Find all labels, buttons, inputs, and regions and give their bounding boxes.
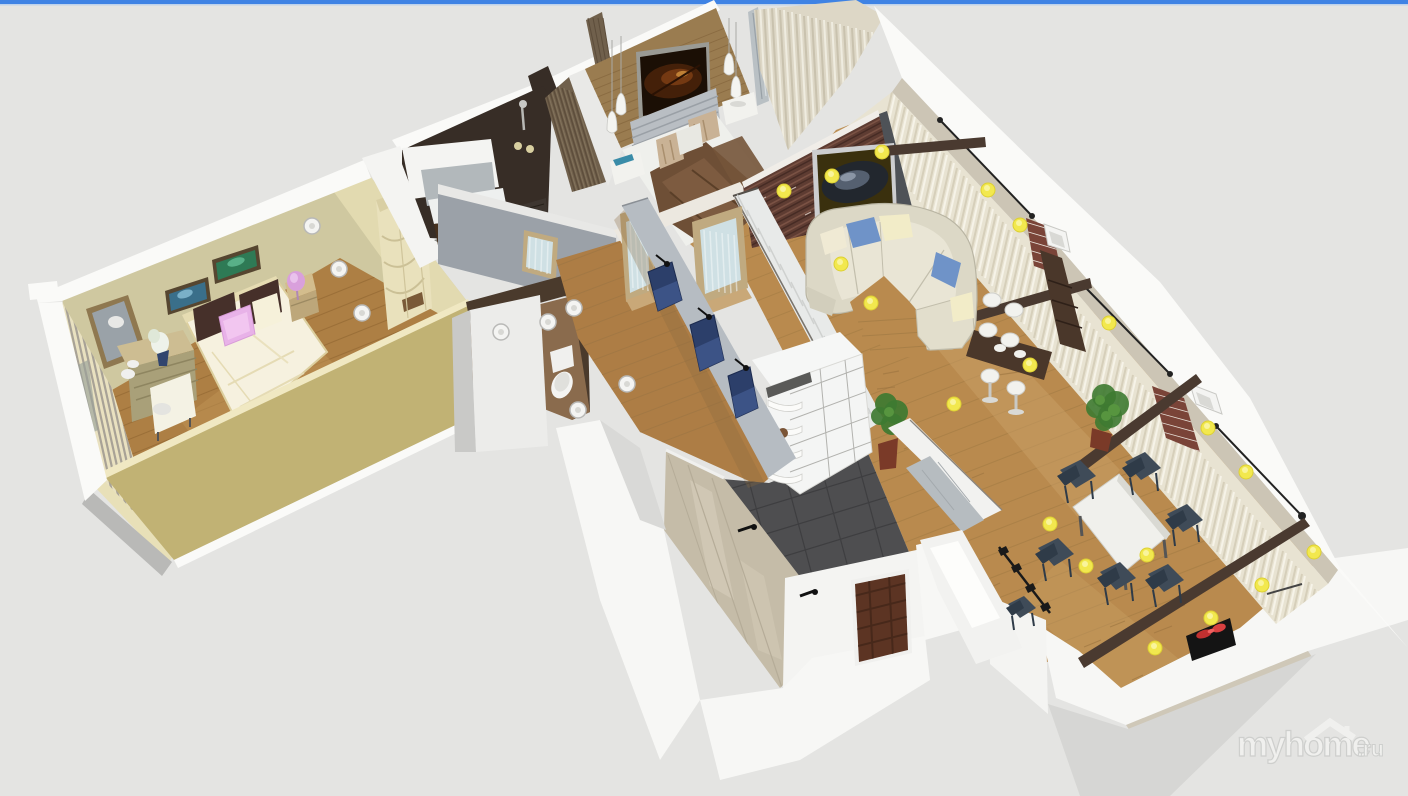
svg-text:myhome: myhome (1237, 725, 1370, 764)
svg-text:.ru: .ru (1357, 738, 1384, 761)
